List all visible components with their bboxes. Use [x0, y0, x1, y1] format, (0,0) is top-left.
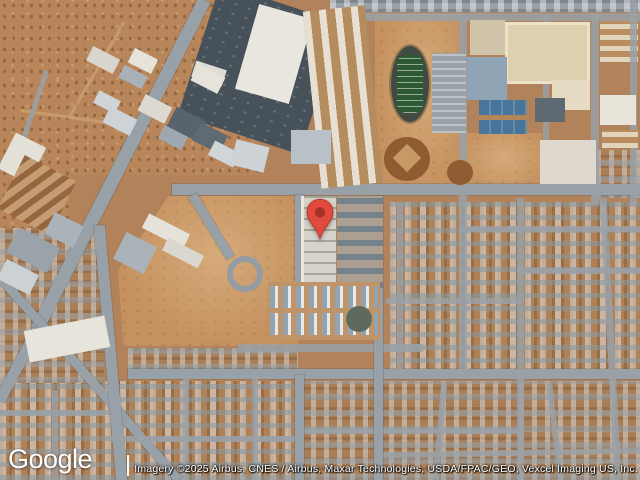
street-horizontal: [517, 268, 640, 274]
white-building-east: [600, 95, 636, 125]
rooftops-top-strip: [330, 0, 640, 12]
cul-de-sac-loop: [227, 256, 263, 292]
school-south-building: [540, 140, 596, 184]
imagery-attribution: Imagery ©2025 Airbus, CNES / Airbus, Max…: [134, 463, 638, 475]
school-dark-roof-building: [535, 98, 565, 122]
location-pin-marker[interactable]: [305, 198, 335, 245]
apartment-row-east: [602, 130, 638, 148]
gym-blue-roof-building: [467, 57, 507, 100]
baseball-diamond-small: [447, 160, 473, 185]
football-field: [397, 55, 423, 113]
school-parking-lot: [432, 53, 466, 133]
school-building-north: [470, 20, 505, 55]
street-vertical: [517, 198, 524, 480]
basketball-courts: [479, 100, 527, 134]
pin-body: [307, 199, 333, 239]
street-vertical: [397, 202, 403, 374]
east-west-road-south: [128, 369, 640, 379]
mid-street: [238, 344, 423, 352]
east-west-main-road: [172, 184, 640, 195]
road-marking-white: [127, 455, 129, 476]
street-horizontal: [110, 436, 300, 442]
map-canvas[interactable]: Google Imagery ©2025 Airbus, CNES / Airb…: [0, 0, 640, 480]
street-horizontal: [460, 226, 640, 232]
townhouse-complex: [268, 282, 380, 340]
street-horizontal: [300, 428, 520, 434]
blue-gray-building-north-of-pin: [291, 130, 331, 164]
townhouse-row: [270, 286, 378, 308]
pin-graphic: [305, 198, 335, 240]
pin-inner-dot: [315, 207, 325, 217]
apartment-complex-east-of-pin: [337, 196, 383, 288]
street-horizontal: [386, 298, 520, 304]
courtyard-circle: [346, 306, 372, 332]
google-logo[interactable]: Google: [8, 444, 92, 475]
school-main-building: [505, 22, 590, 84]
